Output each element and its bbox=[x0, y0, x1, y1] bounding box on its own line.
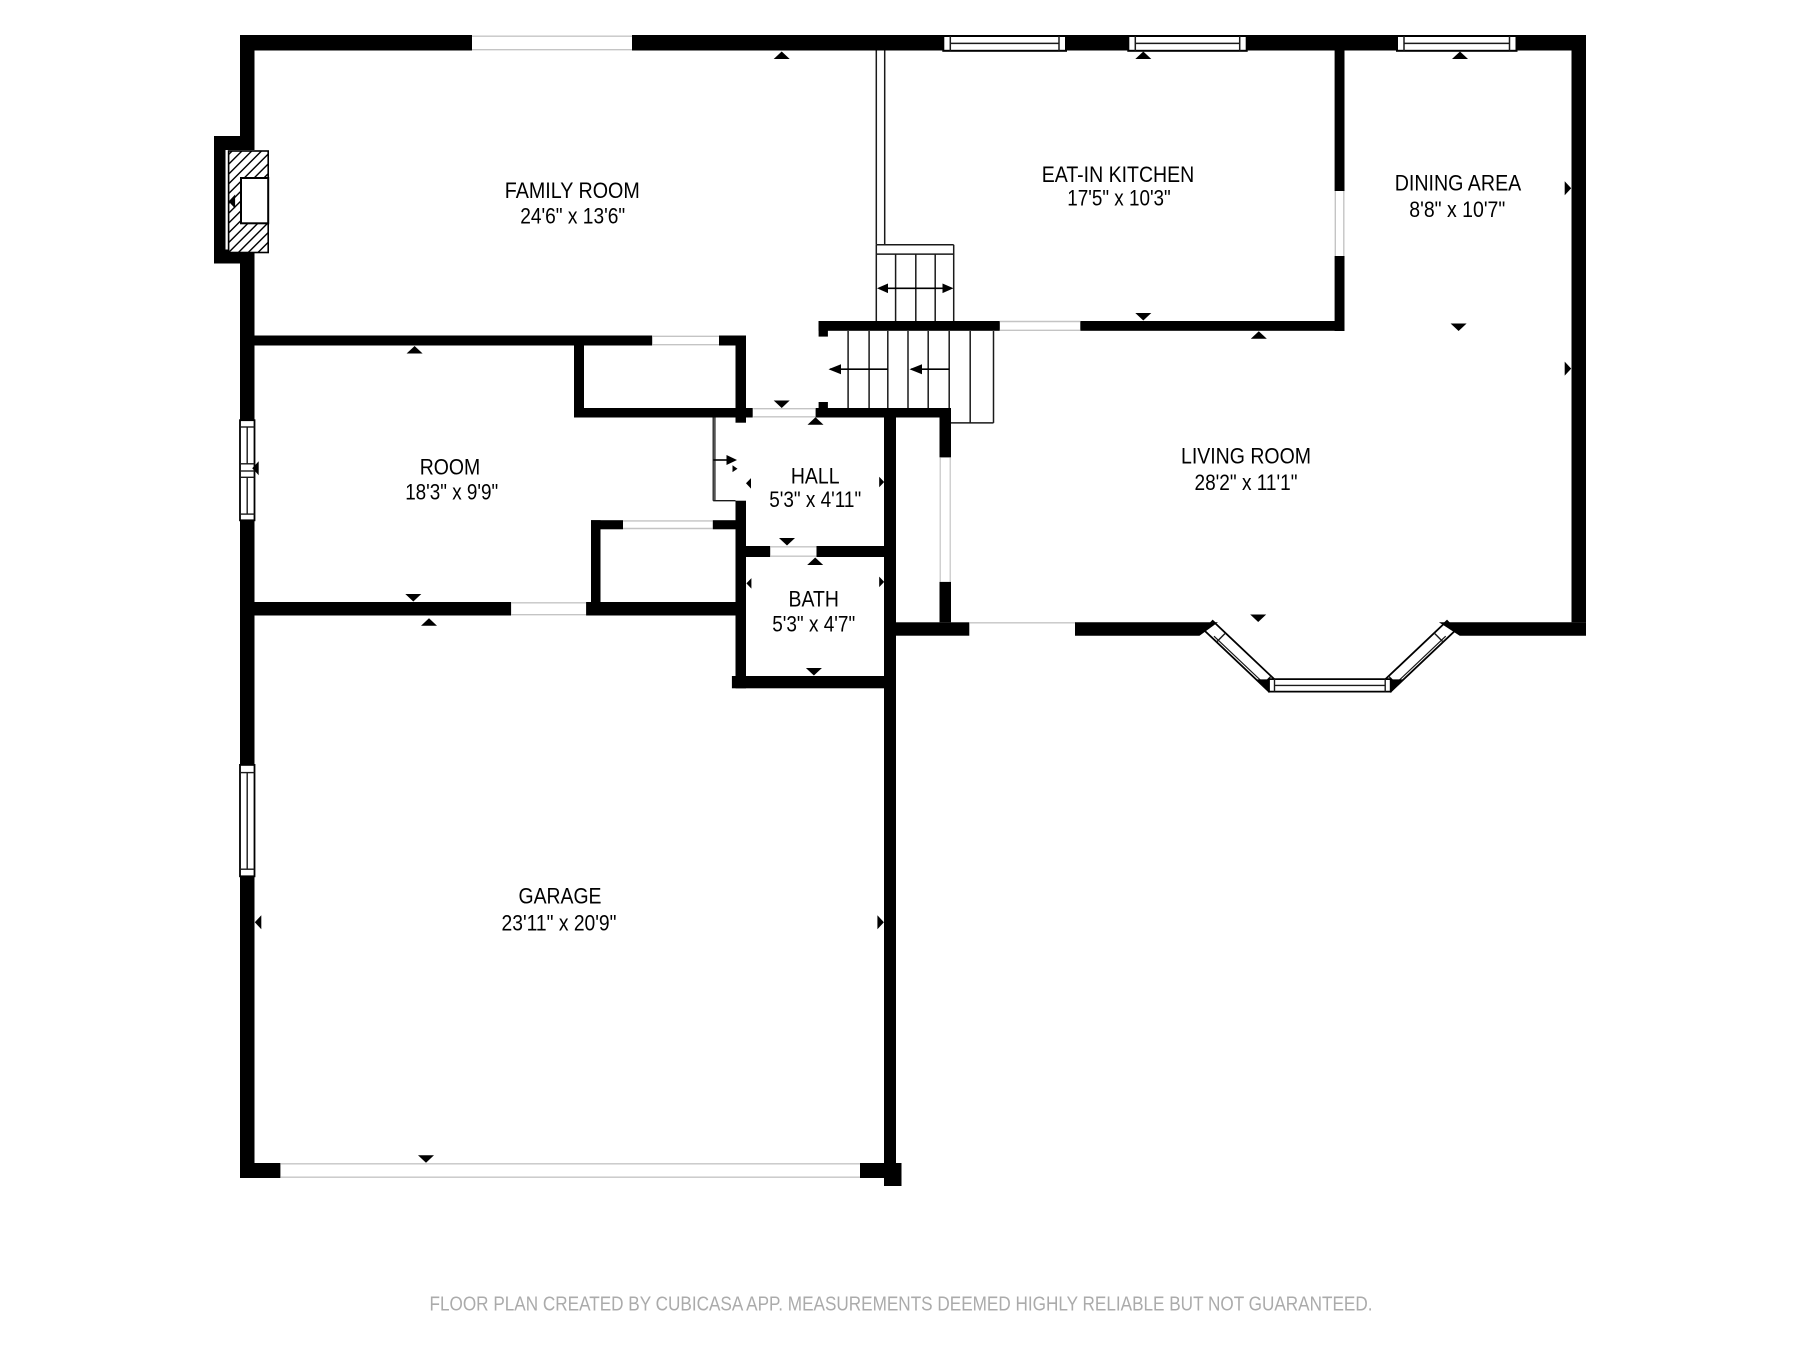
svg-text:28'2" x 11'1": 28'2" x 11'1" bbox=[1195, 470, 1298, 495]
svg-text:24'6" x 13'6": 24'6" x 13'6" bbox=[520, 204, 625, 229]
svg-text:23'11" x 20'9": 23'11" x 20'9" bbox=[502, 911, 617, 936]
svg-text:17'5" x 10'3": 17'5" x 10'3" bbox=[1067, 186, 1171, 211]
svg-text:HALL: HALL bbox=[791, 464, 840, 489]
svg-text:BATH: BATH bbox=[789, 586, 839, 611]
svg-text:5'3" x 4'11": 5'3" x 4'11" bbox=[769, 487, 861, 512]
svg-text:GARAGE: GARAGE bbox=[519, 884, 602, 909]
svg-text:DINING AREA: DINING AREA bbox=[1395, 171, 1522, 196]
svg-text:8'8" x 10'7": 8'8" x 10'7" bbox=[1409, 197, 1505, 222]
svg-text:LIVING ROOM: LIVING ROOM bbox=[1181, 444, 1311, 469]
svg-text:EAT-IN KITCHEN: EAT-IN KITCHEN bbox=[1042, 162, 1195, 187]
svg-text:18'3" x 9'9": 18'3" x 9'9" bbox=[405, 480, 498, 505]
svg-text:FLOOR PLAN CREATED BY CUBICASA: FLOOR PLAN CREATED BY CUBICASA APP. MEAS… bbox=[430, 1294, 1373, 1316]
svg-text:FAMILY ROOM: FAMILY ROOM bbox=[505, 178, 640, 203]
svg-text:5'3" x 4'7": 5'3" x 4'7" bbox=[772, 612, 855, 637]
svg-text:ROOM: ROOM bbox=[420, 455, 481, 480]
